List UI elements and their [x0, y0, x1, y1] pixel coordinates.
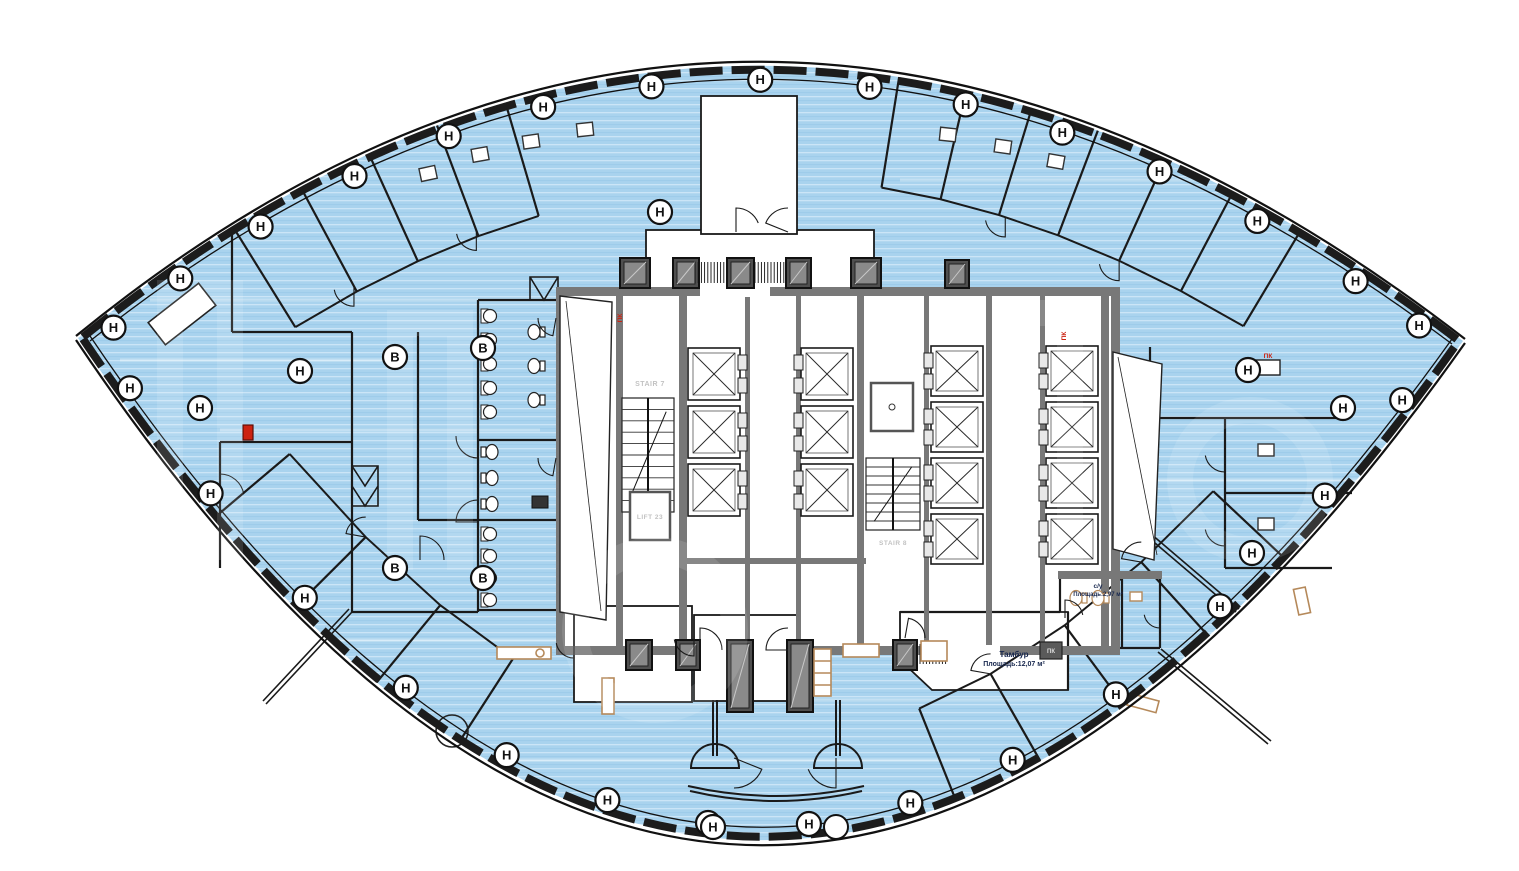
grid-marker: Н [531, 95, 555, 119]
grid-marker-b: В [383, 556, 407, 580]
svg-text:Н: Н [1215, 599, 1224, 614]
elevator-door [1039, 430, 1048, 445]
svg-text:Н: Н [125, 381, 134, 396]
elevator-door [738, 378, 747, 393]
elevator-door [738, 436, 747, 451]
svg-text:Н: Н [502, 748, 511, 763]
elevator-door [794, 436, 803, 451]
elevator-door [738, 471, 747, 486]
toilet [486, 471, 498, 486]
lift23-label: LIFT 23 [637, 514, 663, 521]
grid-marker: Н [1148, 159, 1172, 183]
fire-alarm-cabinet [243, 425, 253, 440]
elevator-door [1039, 409, 1048, 424]
elevator-door [924, 465, 933, 480]
grid-marker: Н [101, 316, 125, 340]
grid-marker: Н [343, 164, 367, 188]
svg-text:Н: Н [1398, 393, 1407, 408]
utility-sink [532, 496, 548, 508]
grid-marker: Н [858, 75, 882, 99]
wc-name: с/у [1093, 583, 1102, 590]
sink [484, 382, 497, 395]
toilet [528, 325, 540, 340]
svg-text:Н: Н [109, 320, 118, 335]
elevator-door [924, 521, 933, 536]
svg-text:Н: Н [906, 795, 915, 810]
elevator-door [1039, 486, 1048, 501]
svg-text:Н: Н [655, 205, 664, 220]
grid-marker: Н [118, 376, 142, 400]
svg-text:Н: Н [708, 820, 717, 835]
elevator-door [738, 355, 747, 370]
svg-text:Н: Н [603, 793, 612, 808]
grid-marker: Н [1313, 484, 1337, 508]
grid-marker-b: В [471, 566, 495, 590]
wall-unit [419, 165, 437, 181]
fire-cabinet-label: ПК [617, 314, 624, 323]
wall-unit [471, 147, 489, 163]
svg-text:Н: Н [206, 486, 215, 501]
svg-text:Н: Н [350, 169, 359, 184]
fire-cabinet-label: ПК [1264, 353, 1273, 360]
grid-marker: Н [797, 812, 821, 836]
svg-text:Н: Н [1320, 488, 1329, 503]
wall-unit [939, 127, 956, 142]
grid-marker: Н [748, 68, 772, 92]
svg-text:Н: Н [1111, 687, 1120, 702]
svg-text:Н: Н [1058, 125, 1067, 140]
elevator-door [794, 413, 803, 428]
elevator-door [924, 409, 933, 424]
tambour-area: Площадь:12,07 м² [983, 661, 1045, 668]
svg-text:Н: Н [444, 129, 453, 144]
svg-text:Н: Н [1338, 401, 1347, 416]
svg-text:Н: Н [756, 72, 765, 87]
svg-text:Н: Н [401, 680, 410, 695]
elevator-door [1039, 374, 1048, 389]
toilet [486, 445, 498, 460]
wall-unit [522, 134, 540, 149]
grid-marker: Н [701, 815, 725, 839]
grid-marker: Н [1407, 314, 1431, 338]
wall-unit [1047, 154, 1065, 170]
stair8-label: STAIR 8 [879, 540, 907, 547]
svg-text:В: В [390, 350, 399, 365]
svg-text:Н: Н [295, 364, 304, 379]
floor-plan-drawing: ННННННННННННННННННННННННННННННННННННВВВВ… [0, 0, 1519, 871]
tambour-name: Тамбур [999, 650, 1028, 659]
grid-marker: Н [168, 266, 192, 290]
svg-text:Н: Н [538, 99, 547, 114]
svg-text:Н: Н [1351, 274, 1360, 289]
grid-marker-b: В [383, 345, 407, 369]
toilet [486, 497, 498, 512]
toilet [528, 359, 540, 374]
svg-text:В: В [478, 571, 487, 586]
svg-text:В: В [478, 341, 487, 356]
sink [484, 310, 497, 323]
top-corridor [701, 96, 797, 234]
elevator-door [1039, 465, 1048, 480]
cabinet [921, 641, 947, 661]
svg-text:Н: Н [195, 401, 204, 416]
elevator-door [738, 494, 747, 509]
elevator-door [924, 430, 933, 445]
grid-marker: Н [1245, 209, 1269, 233]
svg-text:Н: Н [647, 79, 656, 94]
elevator-door [794, 355, 803, 370]
grid-marker: Н [1331, 396, 1355, 420]
grid-marker: Н [1001, 748, 1025, 772]
svg-text:Н: Н [961, 97, 970, 112]
elevator-door [794, 471, 803, 486]
grid-marker: Н [188, 396, 212, 420]
grid-marker: Н [595, 788, 619, 812]
grid-marker: Н [1208, 594, 1232, 618]
svg-text:Н: Н [256, 219, 265, 234]
floor-plan-canvas: ННННННННННННННННННННННННННННННННННННВВВВ… [0, 0, 1519, 871]
svg-text:Н: Н [1155, 164, 1164, 179]
elevator-door [794, 378, 803, 393]
wc-area: Площадь:2,97 м² [1073, 591, 1122, 598]
grid-marker: Н [1050, 121, 1074, 145]
service-lift-shaft [871, 383, 913, 431]
svg-text:Н: Н [1253, 213, 1262, 228]
elevator-door [924, 353, 933, 368]
svg-text:В: В [390, 561, 399, 576]
svg-text:Н: Н [865, 79, 874, 94]
grid-marker: Н [1240, 541, 1264, 565]
wall-unit [576, 122, 593, 137]
sink [484, 594, 497, 607]
elevator-door [924, 542, 933, 557]
stair7-label: STAIR 7 [635, 381, 665, 388]
grid-marker: Н [898, 791, 922, 815]
svg-text:Н: Н [1243, 363, 1252, 378]
grid-marker: Н [1236, 358, 1260, 382]
elevator-door [924, 486, 933, 501]
grid-marker: Н [639, 74, 663, 98]
svg-text:Н: Н [1008, 752, 1017, 767]
desk [1293, 587, 1310, 615]
grid-marker: Н [288, 359, 312, 383]
grid-marker: Н [249, 215, 273, 239]
grid-marker: Н [437, 124, 461, 148]
urinal [1130, 592, 1142, 601]
fire-cabinet-label: ПК [1047, 649, 1055, 655]
grid-marker: Н [293, 586, 317, 610]
grid-marker-b: В [471, 336, 495, 360]
elevator-door [1039, 521, 1048, 536]
wall-unit [1258, 518, 1274, 530]
elevator-door [924, 374, 933, 389]
svg-text:Н: Н [300, 590, 309, 605]
grid-marker: Н [954, 92, 978, 116]
fire-cabinet-label: ПК [1061, 332, 1068, 341]
grid-marker: Н [1104, 682, 1128, 706]
column-marker [824, 815, 848, 839]
elevator-door [1039, 353, 1048, 368]
svg-text:Н: Н [1414, 318, 1423, 333]
grid-marker: Н [394, 676, 418, 700]
sink [484, 406, 497, 419]
elevator-door [1039, 542, 1048, 557]
wall-unit [994, 139, 1012, 154]
sink [484, 528, 497, 541]
grid-marker: Н [1390, 388, 1414, 412]
svg-text:Н: Н [804, 816, 813, 831]
elevator-door [794, 494, 803, 509]
elevator-door [738, 413, 747, 428]
grid-marker: Н [648, 200, 672, 224]
wall-unit [1258, 444, 1274, 456]
svg-text:Н: Н [176, 271, 185, 286]
sink [484, 550, 497, 563]
sofa [843, 644, 879, 657]
svg-text:Н: Н [1247, 546, 1256, 561]
grid-marker: Н [495, 743, 519, 767]
grid-marker: Н [199, 481, 223, 505]
toilet [528, 393, 540, 408]
grid-marker: Н [1344, 269, 1368, 293]
